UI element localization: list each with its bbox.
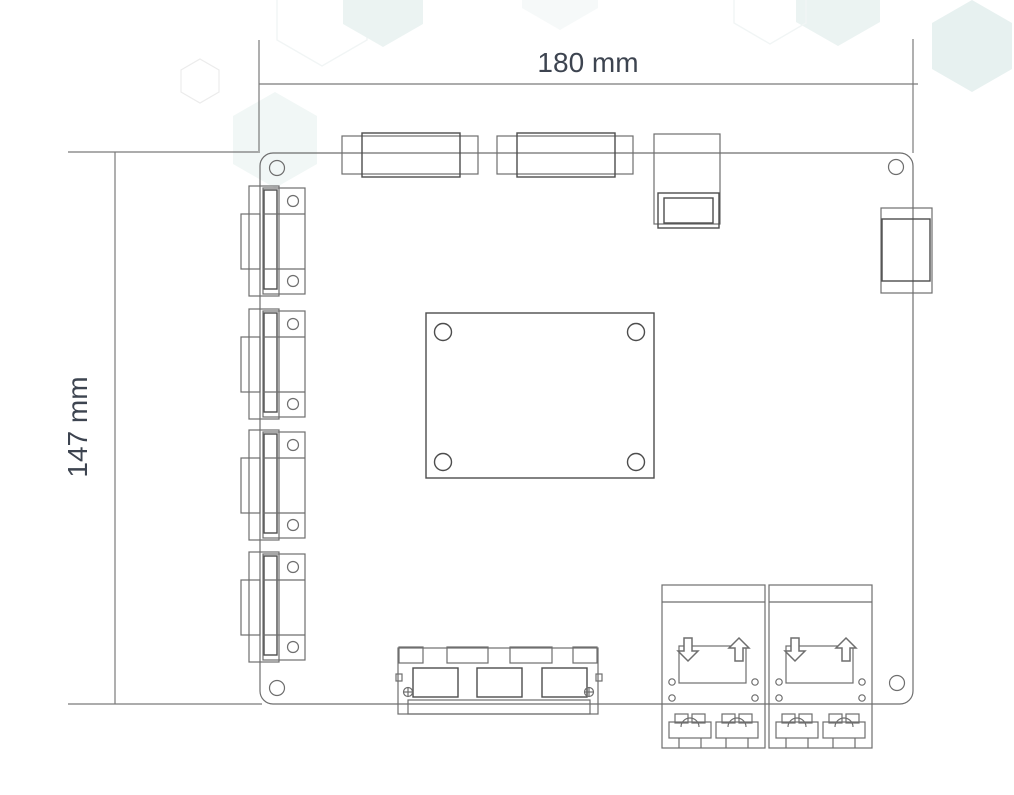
port-opening-3	[542, 668, 587, 697]
cpu-mount-hole	[628, 324, 645, 341]
serial-connector-2	[241, 309, 305, 419]
hexagon-outline-small	[181, 59, 219, 103]
screw-icon	[404, 688, 413, 697]
top-header-block-2	[497, 133, 633, 177]
mounting-hole-bottom-left	[270, 681, 285, 696]
hexagon-top-right-large	[932, 0, 1012, 92]
port-opening-2	[477, 668, 522, 697]
mounting-hole-top-right	[889, 160, 904, 175]
board-dimension-diagram: 180 mm 147 mm	[0, 0, 1014, 795]
height-dimension: 147 mm	[62, 152, 262, 704]
power-terminal-module-1	[662, 585, 765, 748]
diagram-canvas: 180 mm 147 mm	[0, 0, 1014, 795]
hexagon-ghost-top	[522, 0, 598, 30]
cpu-mount-hole	[628, 454, 645, 471]
hexagon-top-right-small	[796, 0, 880, 46]
top-header-block-1	[342, 133, 478, 177]
hexagon-outline-top-right	[734, 0, 806, 44]
right-edge-connector	[881, 208, 932, 293]
serial-connector-1	[241, 186, 305, 296]
power-terminal-module-2	[769, 585, 872, 748]
usb-connector	[654, 134, 720, 228]
screw-icon	[585, 688, 594, 697]
pcb-outline	[260, 153, 913, 704]
cpu-mounting-area	[426, 313, 654, 478]
hexagon-faint-corner	[233, 92, 317, 188]
serial-connector-4	[241, 552, 305, 662]
cpu-mount-hole	[435, 454, 452, 471]
cpu-mount-hole	[435, 324, 452, 341]
width-dimension-label: 180 mm	[537, 47, 638, 78]
hexagon-decoration	[181, 0, 1012, 188]
port-opening-1	[413, 668, 458, 697]
mounting-hole-bottom-right	[890, 676, 905, 691]
serial-connector-3	[241, 430, 305, 540]
height-dimension-label: 147 mm	[62, 376, 93, 477]
hexagon-top-center	[343, 0, 423, 47]
